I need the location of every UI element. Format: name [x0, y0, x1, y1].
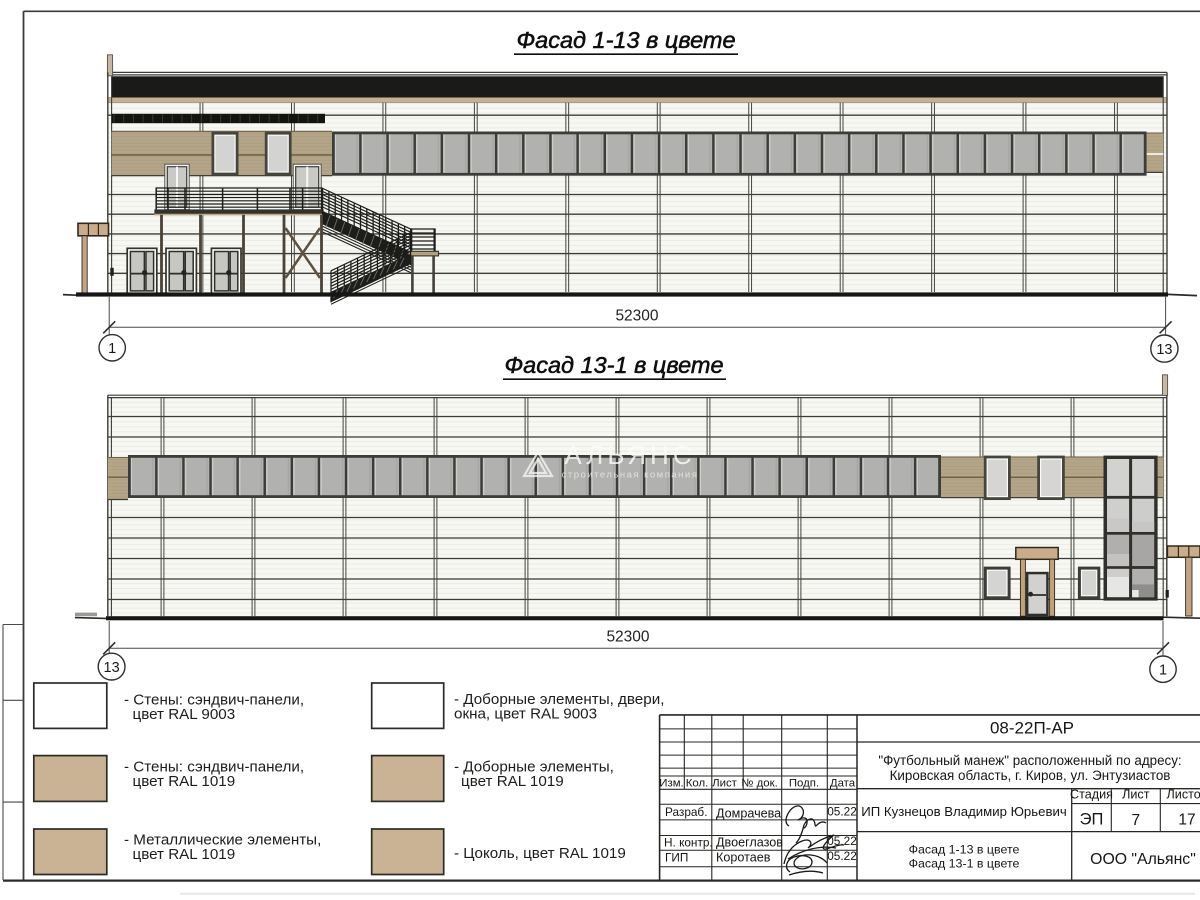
svg-text:7: 7: [1131, 812, 1140, 829]
svg-text:Лист: Лист: [712, 777, 738, 789]
svg-text:Фасад 13-1 в цвете: Фасад 13-1 в цвете: [909, 857, 1020, 871]
svg-text:ЭП: ЭП: [1080, 811, 1104, 829]
svg-text:цвет RAL 1019: цвет RAL 1019: [133, 846, 236, 863]
svg-text:52300: 52300: [615, 308, 658, 325]
svg-text:цвет RAL 1019: цвет RAL 1019: [461, 773, 564, 790]
svg-text:АЛЬЯНС: АЛЬЯНС: [564, 440, 695, 470]
svg-text:Дата: Дата: [830, 777, 856, 789]
svg-text:05.22: 05.22: [827, 849, 857, 863]
svg-text:1: 1: [1159, 662, 1167, 678]
svg-text:ГИП: ГИП: [665, 851, 688, 865]
svg-text:17: 17: [1178, 812, 1195, 829]
svg-text:ООО "Альянс": ООО "Альянс": [1090, 851, 1196, 868]
svg-text:Домрачева: Домрачева: [716, 807, 781, 821]
svg-text:13: 13: [1156, 342, 1172, 358]
svg-text:строительная компания: строительная компания: [562, 470, 699, 481]
svg-text:Лист: Лист: [1122, 788, 1150, 802]
svg-text:Фасад 1-13 в цвете: Фасад 1-13 в цвете: [909, 843, 1020, 857]
svg-text:Двоеглазов: Двоеглазов: [716, 836, 783, 850]
svg-text:05.22: 05.22: [827, 805, 857, 819]
svg-text:13: 13: [104, 660, 120, 676]
svg-text:52300: 52300: [606, 629, 649, 646]
svg-text:окна, цвет RAL 9003: окна, цвет RAL 9003: [454, 706, 597, 723]
svg-text:Кол.: Кол.: [686, 777, 709, 789]
svg-text:"Футбольный манеж" расположенн: "Футбольный манеж" расположенный по адре…: [878, 753, 1181, 768]
svg-text:Разраб.: Разраб.: [665, 805, 707, 819]
svg-text:Листов: Листов: [1167, 788, 1200, 802]
svg-text:Подп.: Подп.: [789, 777, 819, 789]
svg-text:Кировская область, г. Киров, у: Кировская область, г. Киров, ул. Энтузиа…: [890, 768, 1171, 783]
svg-text:Фасад 13-1 в цвете: Фасад 13-1 в цвете: [504, 352, 723, 378]
svg-text:- Цоколь, цвет RAL 1019: - Цоколь, цвет RAL 1019: [454, 845, 626, 862]
svg-text:№ док.: № док.: [741, 777, 778, 789]
svg-text:Стадия: Стадия: [1070, 788, 1113, 802]
svg-text:цвет RAL 9003: цвет RAL 9003: [133, 706, 236, 723]
svg-text:1: 1: [108, 341, 116, 357]
svg-text:ИП Кузнецов Владимир Юрьевич: ИП Кузнецов Владимир Юрьевич: [861, 804, 1066, 819]
svg-text:Коротаев: Коротаев: [716, 851, 771, 865]
svg-text:08-22П-АР: 08-22П-АР: [990, 719, 1074, 738]
svg-text:Изм.: Изм.: [659, 777, 683, 789]
svg-text:Фасад 1-13 в цвете: Фасад 1-13 в цвете: [516, 27, 735, 53]
svg-text:Н. контр.: Н. контр.: [664, 836, 713, 850]
svg-text:цвет RAL 1019: цвет RAL 1019: [133, 773, 236, 790]
